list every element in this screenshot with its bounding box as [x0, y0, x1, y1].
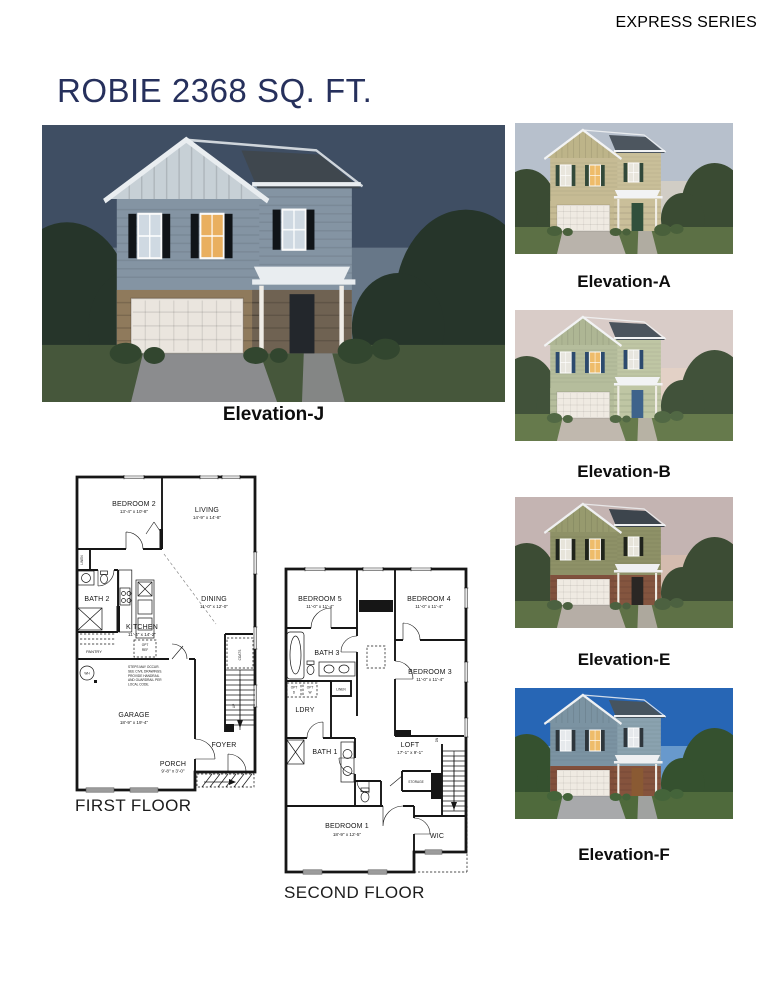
room-label: LDRY — [295, 707, 314, 714]
room-label: BATH 2 — [84, 596, 109, 603]
room-label: LOFT — [401, 742, 420, 749]
room-label: COATS — [238, 650, 242, 661]
room-label: LIVING — [195, 507, 219, 514]
room-dims: 18'-9" x 12'-5" — [333, 832, 362, 837]
room-dims: 9'-8" x 3'-0" — [161, 769, 185, 774]
elevation-e-photo — [515, 497, 733, 628]
room-label: PORCH — [160, 761, 186, 768]
bath1-door — [339, 758, 355, 774]
room-dims: 11'-0" x 12'-0" — [200, 604, 228, 609]
first-floor-title: FIRST FLOOR — [75, 796, 192, 816]
room-label: BATH 3 — [314, 650, 339, 657]
room-dims: 17'-1" x 9'-1" — [397, 750, 423, 755]
first-floor-plan: BEDROOM 2 13'-4" x 10'-8" LIVING 14'-9" … — [74, 474, 260, 796]
bath3-door — [341, 636, 357, 652]
room-label: BEDROOM 1 — [325, 823, 369, 830]
wic-door — [414, 818, 430, 834]
room-dims: 11'-4" x 14'-2" — [128, 632, 156, 637]
opt-ref-label: OPT — [142, 643, 149, 647]
opt-dryer-label: OPT — [291, 686, 298, 690]
kitchen-counter — [119, 570, 132, 632]
bedroom4-door — [403, 623, 420, 640]
storage-door — [390, 776, 402, 786]
house-rendering — [515, 688, 733, 819]
room-label: DINING — [201, 596, 227, 603]
opt-washer-label: W — [308, 691, 311, 695]
elevation-j-label: Elevation-J — [42, 404, 505, 426]
svg-text:LOCAL CODE.: LOCAL CODE. — [128, 683, 149, 687]
attic-access — [367, 646, 385, 668]
second-floor-title: SECOND FLOOR — [284, 883, 425, 903]
opt-ref-label: REF — [142, 648, 148, 652]
house-rendering — [42, 125, 505, 402]
elevation-j-photo — [42, 125, 505, 402]
room-label: BEDROOM 3 — [408, 669, 452, 676]
elevation-b-photo — [515, 310, 733, 441]
room-dims: 11'-0" x 11'-4" — [415, 604, 443, 609]
pantry-shelves — [80, 634, 116, 644]
svg-text:STEPS MAY OCCUR.: STEPS MAY OCCUR. — [128, 665, 160, 669]
elevation-a-label: Elevation-A — [515, 272, 733, 292]
bedroom5-door — [311, 608, 331, 628]
house-rendering — [515, 497, 733, 628]
stairs-direction: DN — [435, 737, 439, 742]
construction-note: STEPS MAY OCCUR. SEE CIVIL DRAWINGS. PRO… — [128, 665, 162, 687]
elevation-f-photo — [515, 688, 733, 819]
stairs-direction: UP — [232, 704, 236, 708]
front-door — [228, 754, 246, 772]
opt-washer-label: OPT — [307, 686, 314, 690]
elevation-a-photo — [515, 123, 733, 254]
elevation-f-label: Elevation-F — [515, 845, 733, 865]
svg-text:SEE CIVIL DRAWINGS.: SEE CIVIL DRAWINGS. — [128, 669, 162, 673]
bedroom2-door — [126, 532, 143, 549]
room-label: FOYER — [211, 742, 236, 749]
room-dims: 11'-0" x 11'-4" — [306, 604, 334, 609]
room-label: STORAGE — [408, 780, 424, 784]
svg-text:PROVIDE HANDRAIL: PROVIDE HANDRAIL — [128, 674, 160, 678]
kitchen-door — [172, 644, 187, 659]
room-dims: 18'-9" x 19'-4" — [120, 720, 149, 725]
porch-slab — [197, 774, 254, 787]
opt-dryer-label: D — [293, 691, 296, 695]
room-dims: 13'-4" x 10'-8" — [120, 509, 149, 514]
room-label: WIC — [430, 833, 444, 840]
second-floor-plan: BEDROOM 5 11'-0" x 11'-4" BEDROOM 4 11'-… — [283, 566, 469, 878]
elevation-b-label: Elevation-B — [515, 462, 733, 482]
wh-label: WH — [84, 672, 90, 676]
elevation-e-label: Elevation-E — [515, 650, 733, 670]
svg-text:AND GUARDRAIL PER: AND GUARDRAIL PER — [128, 678, 162, 682]
room-label: LINEN — [336, 688, 346, 692]
ldry-door — [307, 722, 323, 738]
room-dims: 11'-0" x 11'-4" — [416, 677, 444, 682]
bedroom1-door — [383, 806, 403, 826]
room-label: GARAGE — [118, 712, 149, 719]
room-label: LINEN — [80, 555, 84, 565]
room-label: PANTRY — [86, 649, 102, 654]
house-rendering — [515, 123, 733, 254]
page-title: ROBIE 2368 SQ. FT. — [57, 72, 372, 110]
house-rendering — [515, 310, 733, 441]
series-label: EXPRESS SERIES — [615, 14, 757, 32]
room-label: BEDROOM 4 — [407, 596, 451, 603]
room-label: BEDROOM 2 — [112, 501, 156, 508]
room-dims: 14'-9" x 14'-8" — [193, 515, 222, 520]
room-label: BEDROOM 5 — [298, 596, 342, 603]
room-label: KITCHEN — [126, 624, 158, 631]
flyer-page: EXPRESS SERIES ROBIE 2368 SQ. FT. Elevat… — [0, 0, 779, 1008]
room-label: BATH 1 — [312, 749, 337, 756]
